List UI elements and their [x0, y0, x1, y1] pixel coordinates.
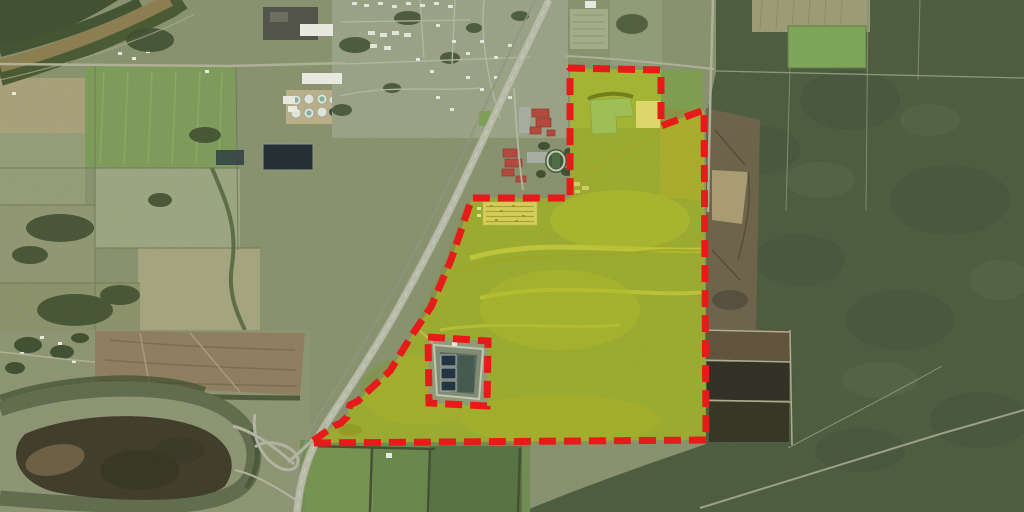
photo-grain [0, 0, 1024, 512]
satellite-map [0, 0, 1024, 512]
